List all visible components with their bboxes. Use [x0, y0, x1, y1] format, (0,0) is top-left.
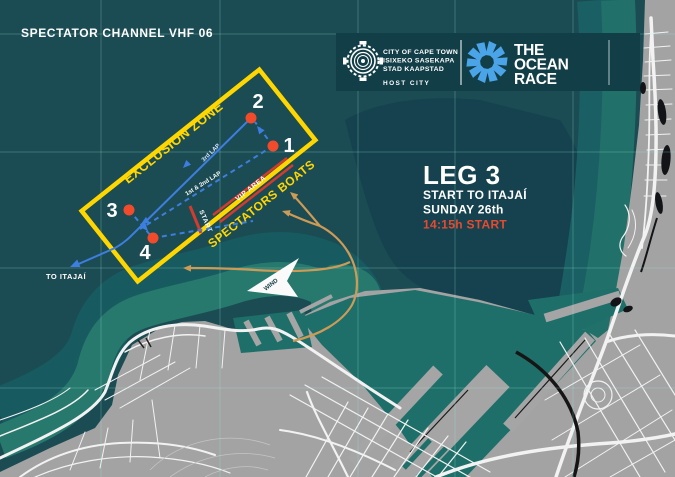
- leg-subtitle: START TO ITAJAÍ: [423, 187, 527, 202]
- mark-3-buoy: [124, 205, 135, 216]
- mark-2-label: 2: [252, 91, 263, 113]
- ocean-race-start-map: CITY OF CAPE TOWN ISIXEKO SASEKAPA STAD …: [0, 0, 675, 477]
- city-line1: CITY OF CAPE TOWN: [383, 49, 458, 56]
- city-line2: ISIXEKO SASEKAPA: [383, 58, 455, 65]
- leg-title: LEG 3: [423, 160, 501, 190]
- leg-start-time: 14:15h START: [423, 218, 507, 232]
- mark-3-label: 3: [106, 200, 117, 222]
- host-city-label: HOST CITY: [383, 80, 430, 87]
- mark-2-buoy: [246, 113, 257, 124]
- mark-4-label: 4: [139, 242, 151, 264]
- map-canvas: CITY OF CAPE TOWN ISIXEKO SASEKAPA STAD …: [0, 0, 675, 477]
- tor-line3: RACE: [514, 71, 557, 88]
- mark-1-label: 1: [283, 135, 294, 157]
- spectator-channel-label: SPECTATOR CHANNEL VHF 06: [21, 26, 213, 40]
- to-itajai-label: TO ITAJAÍ: [46, 272, 86, 281]
- mark-1-buoy: [268, 141, 279, 152]
- city-line3: STAD KAAPSTAD: [383, 66, 444, 73]
- leg-date: SUNDAY 26th: [423, 203, 504, 217]
- header-band: CITY OF CAPE TOWN ISIXEKO SASEKAPA STAD …: [336, 33, 640, 91]
